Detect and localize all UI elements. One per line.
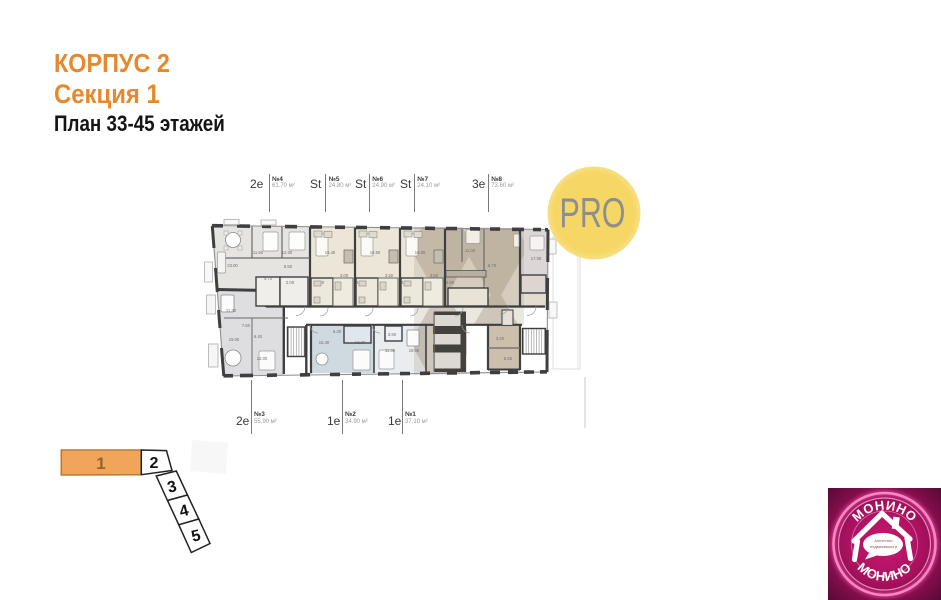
svg-text:6.40: 6.40 (254, 334, 263, 339)
svg-text:3.20: 3.20 (496, 336, 505, 341)
svg-text:Агентство: Агентство (874, 538, 893, 543)
svg-text:6.70: 6.70 (488, 263, 497, 268)
svg-text:11.00: 11.00 (465, 248, 476, 253)
svg-text:4.70: 4.70 (264, 276, 273, 281)
svg-text:4.60: 4.60 (446, 280, 455, 285)
svg-text:3.90: 3.90 (388, 332, 397, 337)
svg-text:12.00: 12.00 (257, 356, 268, 361)
svg-text:2.00: 2.00 (286, 280, 295, 285)
svg-text:8.50: 8.50 (284, 264, 293, 269)
svg-text:11.50: 11.50 (253, 250, 264, 255)
svg-text:недвижимости: недвижимости (870, 544, 897, 549)
svg-text:11.30: 11.30 (226, 308, 237, 313)
svg-text:12.20: 12.20 (355, 340, 366, 345)
svg-text:PRO: PRO (560, 189, 626, 236)
svg-text:1: 1 (96, 454, 105, 473)
svg-text:16.40: 16.40 (325, 250, 336, 255)
svg-text:23.00: 23.00 (227, 263, 238, 268)
svg-text:16.50: 16.50 (370, 250, 381, 255)
svg-text:19.00: 19.00 (409, 348, 420, 353)
svg-text:3.50: 3.50 (385, 273, 394, 278)
svg-text:6.30: 6.30 (333, 329, 342, 334)
svg-text:7.60: 7.60 (242, 323, 251, 328)
svg-text:2: 2 (150, 455, 159, 472)
svg-text:3.50: 3.50 (430, 273, 439, 278)
svg-text:19.00: 19.00 (229, 337, 240, 342)
svg-text:3.00: 3.00 (340, 273, 349, 278)
svg-text:11.30: 11.30 (385, 348, 396, 353)
svg-text:12.00: 12.00 (282, 250, 293, 255)
svg-text:5.50: 5.50 (504, 356, 513, 361)
svg-text:15.40: 15.40 (319, 340, 330, 345)
svg-text:17.00: 17.00 (531, 256, 542, 261)
svg-text:16.00: 16.00 (415, 250, 426, 255)
